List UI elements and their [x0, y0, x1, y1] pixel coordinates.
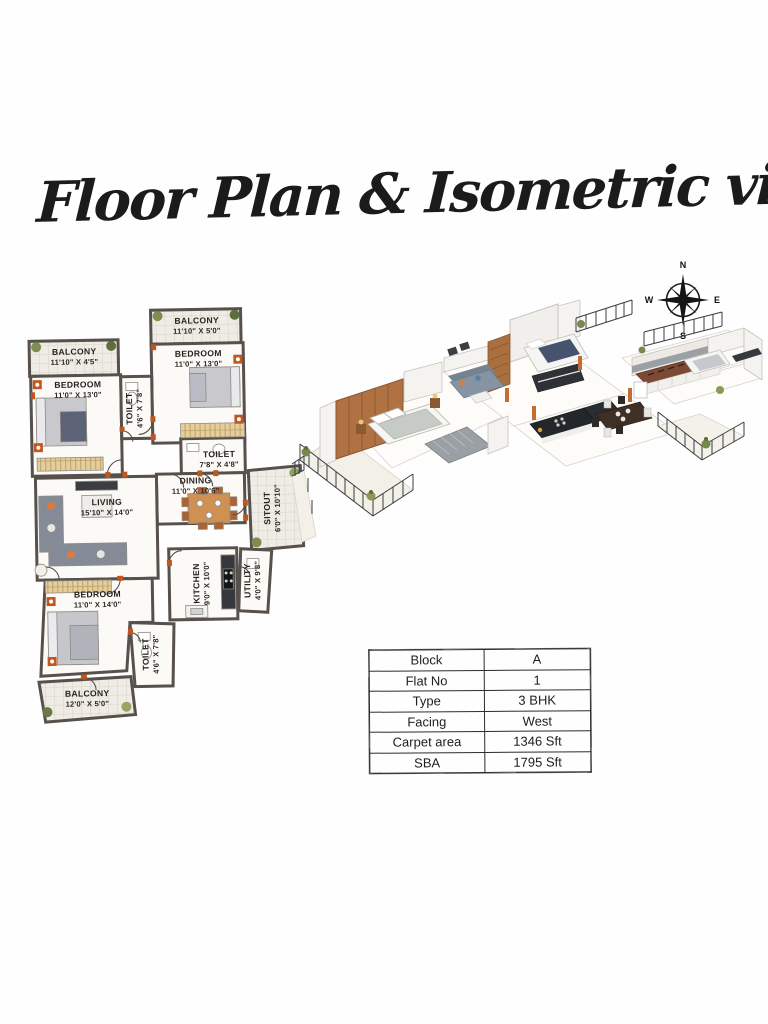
room-dims: 11'10" X 5'0": [173, 326, 221, 336]
room-label: SITOUT: [262, 491, 273, 525]
room-dims: 4'0" X 9'8": [253, 561, 263, 601]
floor-plan: BALCONY 11'10" X 5'0" BEDROOM 11'0" X 13…: [24, 298, 308, 724]
room-dims: 7'8" X 4'8": [200, 460, 240, 470]
room-label: TOILET: [140, 638, 151, 671]
table-label-cell: Block: [369, 649, 484, 670]
table-label-cell: Carpet area: [370, 731, 485, 752]
room-dims: 4'6" X 7'8": [135, 389, 145, 429]
table-label-cell: SBA: [370, 752, 485, 773]
room-label: BALCONY: [65, 688, 110, 699]
scanned-brochure-page: Floor Plan & Isometric view N E S W: [0, 0, 768, 1024]
compass-n: N: [680, 260, 687, 270]
table-value-cell: A: [484, 649, 591, 670]
room-dims: 12'0" X 5'0": [65, 699, 109, 709]
room-label: BALCONY: [174, 315, 219, 326]
room-label: KITCHEN: [191, 563, 202, 603]
table-row: Carpet area 1346 Sft: [370, 731, 591, 753]
room-label: TOILET: [203, 449, 236, 460]
room-label: DINING: [179, 475, 211, 486]
table-label-cell: Flat No: [369, 670, 484, 691]
table-value-cell: West: [484, 710, 591, 731]
room-dims: 11'0" X 10'6": [172, 486, 220, 496]
table-value-cell: 1: [484, 669, 591, 690]
room-dims: 11'0" X 14'0": [74, 600, 122, 610]
table-row: Type 3 BHK: [369, 690, 590, 712]
room-label: TOILET: [124, 392, 135, 425]
room-dims: 11'10" X 4'5": [51, 357, 99, 367]
table-row: Block A: [369, 649, 590, 671]
room-label: LIVING: [92, 497, 123, 508]
table-value-cell: 3 BHK: [484, 690, 591, 711]
table-row: SBA 1795 Sft: [370, 751, 591, 773]
page-title: Floor Plan & Isometric view: [34, 154, 678, 270]
isometric-view: [292, 296, 764, 569]
table-label-cell: Facing: [370, 711, 485, 732]
room-dims: 15'10" X 14'0": [81, 508, 134, 518]
table-value-cell: 1795 Sft: [484, 751, 591, 772]
room-dims: 6'0" X 10'10": [273, 484, 283, 532]
room-label: BEDROOM: [175, 348, 222, 359]
room-dims: 11'0" X 13'0": [175, 359, 223, 369]
room-label: UTILITY: [242, 563, 253, 598]
table-row: Facing West: [370, 710, 591, 732]
table-value-cell: 1346 Sft: [484, 731, 591, 752]
room-label: BEDROOM: [54, 379, 101, 390]
table-row: Flat No 1: [369, 669, 590, 691]
room-dims: 4'6" X 7'8": [151, 634, 161, 674]
room-label: BALCONY: [52, 346, 97, 357]
room-label: BEDROOM: [74, 589, 121, 600]
table-label-cell: Type: [369, 690, 484, 711]
room-dims: 11'0" X 13'0": [54, 390, 102, 400]
details-table: Block A Flat No 1 Type 3 BHK Facing West…: [369, 648, 592, 774]
room-dims: 9'0" X 10'0": [202, 561, 212, 605]
